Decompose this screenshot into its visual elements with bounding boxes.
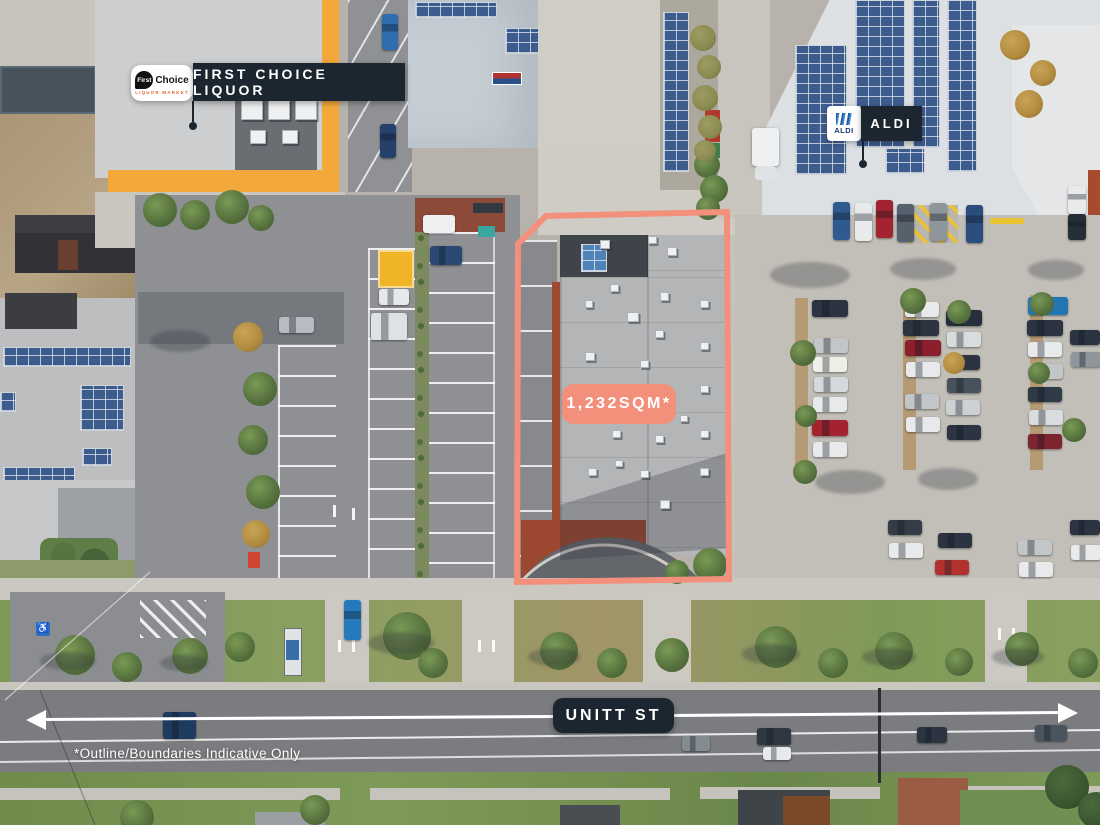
tree xyxy=(692,85,718,111)
tree-shadow xyxy=(992,648,1044,666)
car xyxy=(382,14,398,50)
tree xyxy=(238,425,268,455)
hvac-unit xyxy=(585,300,593,308)
car xyxy=(1028,342,1062,357)
tree xyxy=(1028,362,1050,384)
solar-panel-array xyxy=(82,448,112,466)
tree-shadow xyxy=(368,632,434,654)
disabled-parking-symbol: ♿ xyxy=(36,622,50,636)
footpath-south xyxy=(0,788,340,800)
parking-bay-lines xyxy=(278,345,336,590)
car xyxy=(279,317,314,333)
tree-shadow xyxy=(918,468,978,490)
hvac-unit xyxy=(627,312,639,322)
car xyxy=(344,600,361,640)
car xyxy=(1068,186,1086,214)
hvac-unit xyxy=(700,342,709,350)
tree xyxy=(900,288,926,314)
aldi-logo-text: ALDI xyxy=(834,126,854,135)
car xyxy=(905,340,941,356)
hvac-unit xyxy=(640,360,649,368)
hvac-unit xyxy=(667,247,677,256)
tree xyxy=(1030,292,1054,316)
hvac-unit xyxy=(295,100,317,120)
tree xyxy=(418,648,448,678)
solar-panel-array xyxy=(80,385,124,431)
car xyxy=(813,397,847,412)
solar-panel-array xyxy=(0,392,16,412)
hvac-unit xyxy=(700,385,709,393)
tree xyxy=(665,560,689,584)
tree xyxy=(597,648,627,678)
house-roof xyxy=(560,805,620,825)
tree xyxy=(945,648,973,676)
tree-shadow xyxy=(40,652,96,670)
car xyxy=(813,442,847,457)
car xyxy=(1071,352,1100,367)
car xyxy=(1029,410,1063,425)
car xyxy=(947,332,981,347)
first-choice-logo-text: Choice xyxy=(155,75,188,86)
car xyxy=(814,377,848,392)
hvac-unit xyxy=(610,284,619,292)
tree xyxy=(248,205,274,231)
hvac-unit xyxy=(700,468,709,476)
tree xyxy=(246,475,280,509)
car xyxy=(855,203,872,241)
tree xyxy=(655,638,689,672)
car xyxy=(812,300,848,317)
tree xyxy=(694,140,716,162)
site-front-ground xyxy=(521,520,646,580)
hvac-unit xyxy=(655,330,664,338)
white-van xyxy=(423,215,455,233)
street-name-label: UNITT ST xyxy=(553,698,674,733)
tree xyxy=(233,322,263,352)
gabled-roof-building xyxy=(408,0,553,148)
tree xyxy=(1000,30,1030,60)
hvac-unit xyxy=(600,240,610,249)
first-choice-logo: First Choice xyxy=(135,71,188,89)
car xyxy=(1068,214,1086,240)
first-choice-logo-tagline: LIQUOR MARKET xyxy=(135,90,189,95)
solar-panel-array xyxy=(885,148,925,174)
tree-shadow xyxy=(528,648,580,666)
tree xyxy=(1015,90,1043,118)
tree xyxy=(225,632,255,662)
aqua-container xyxy=(478,226,495,237)
hvac-unit xyxy=(615,460,623,467)
hvac-unit xyxy=(588,468,597,476)
hvac-unit xyxy=(241,100,263,120)
tree xyxy=(697,55,721,79)
trolley-bay-canopy xyxy=(378,250,414,288)
tree-shadow xyxy=(890,258,956,280)
tree xyxy=(242,520,270,548)
footpath-south xyxy=(370,788,670,800)
site-area-label: 1,232SQM* xyxy=(562,384,676,424)
brown-container xyxy=(783,796,830,825)
car xyxy=(1018,540,1052,555)
driveway-crossover xyxy=(462,585,514,695)
brown-shed-roof xyxy=(58,240,78,270)
tree-shadow xyxy=(742,644,800,664)
car xyxy=(380,124,396,158)
road-marking-arrow xyxy=(478,640,481,652)
hvac-unit xyxy=(250,130,266,144)
car xyxy=(812,420,848,436)
car xyxy=(682,736,710,751)
median-planting xyxy=(415,230,429,590)
road-marking-arrow xyxy=(352,640,355,652)
hvac-unit xyxy=(700,430,709,438)
tree xyxy=(300,795,330,825)
loading-canopy-roof xyxy=(0,66,96,114)
tree xyxy=(693,548,727,582)
kerb-gutter xyxy=(0,682,1100,690)
hvac-unit xyxy=(640,470,649,478)
solar-panel-array xyxy=(947,0,977,172)
tree xyxy=(818,648,848,678)
car xyxy=(1028,387,1062,402)
car xyxy=(906,417,940,432)
power-pole xyxy=(878,688,881,783)
delivery-truck xyxy=(752,128,779,166)
car xyxy=(946,400,980,415)
hvac-unit xyxy=(700,300,709,308)
hvac-unit xyxy=(655,435,664,443)
car xyxy=(1070,330,1100,345)
road-marking-arrow xyxy=(998,628,1001,640)
aldi-logo-badge: ALDI xyxy=(827,106,861,141)
first-choice-logo-circle: First xyxy=(135,71,153,89)
tree-shadow xyxy=(160,655,208,671)
aldi-logo-stripes xyxy=(836,113,852,125)
dark-flat-roof xyxy=(5,293,77,329)
road-marking-arrow xyxy=(338,640,341,652)
white-hatched-marking xyxy=(140,600,206,638)
truck-cab xyxy=(755,166,776,180)
aldi-label: ALDI xyxy=(861,106,922,141)
solar-panel-array xyxy=(415,2,497,18)
driveway-crossover xyxy=(643,585,691,688)
yellow-kerb-marking xyxy=(990,218,1024,224)
tree xyxy=(793,460,817,484)
tree xyxy=(1030,60,1056,86)
car xyxy=(889,543,923,558)
hvac-unit xyxy=(648,236,657,244)
car xyxy=(1071,545,1100,560)
car xyxy=(930,203,947,241)
hvac-unit xyxy=(660,292,669,301)
car xyxy=(430,246,462,265)
car xyxy=(903,320,939,336)
road-marking-arrow xyxy=(352,508,355,520)
brick-path xyxy=(898,778,968,825)
car xyxy=(917,727,947,743)
first-choice-logo-badge: First Choice LIQUOR MARKET xyxy=(131,65,193,101)
subject-dark-roof-section xyxy=(560,228,655,278)
tree xyxy=(696,196,720,220)
car xyxy=(1070,520,1100,535)
car xyxy=(876,200,893,238)
car xyxy=(897,204,914,242)
car xyxy=(833,202,850,240)
solar-panel-array xyxy=(663,12,689,172)
tree xyxy=(1062,418,1086,442)
tree-shadow xyxy=(815,470,885,494)
car xyxy=(1035,725,1067,741)
solar-panel-array xyxy=(3,347,131,367)
car xyxy=(947,378,981,393)
tree xyxy=(790,340,816,366)
car xyxy=(938,533,972,548)
car xyxy=(371,313,407,340)
car xyxy=(163,712,196,739)
tree xyxy=(243,372,277,406)
tree-shadow xyxy=(150,330,210,352)
tree-shadow xyxy=(770,262,850,288)
hvac-unit xyxy=(282,130,298,144)
roof-sign xyxy=(492,72,522,85)
bus-shelter-roof xyxy=(286,640,299,660)
tree-shadow xyxy=(862,648,916,666)
tree xyxy=(112,652,142,682)
car xyxy=(888,520,922,535)
hvac-unit xyxy=(680,415,688,422)
car xyxy=(814,338,848,353)
parking-bay-lines xyxy=(429,232,495,582)
tree xyxy=(947,300,971,324)
car xyxy=(813,357,847,372)
first-choice-yellow-awning xyxy=(108,170,333,192)
car xyxy=(935,560,969,575)
charity-bin-red xyxy=(248,552,260,568)
planter-median xyxy=(795,298,808,470)
waste-bins xyxy=(473,203,503,213)
aerial-photo-canvas: ♿ First Choice xyxy=(0,0,1100,825)
car xyxy=(1019,562,1053,577)
car xyxy=(905,394,939,409)
road-marking-arrow xyxy=(333,505,336,517)
tree xyxy=(180,200,210,230)
boundary-disclaimer-text: *Outline/Boundaries Indicative Only xyxy=(74,746,300,761)
road-marking-arrow xyxy=(492,640,495,652)
car xyxy=(966,205,983,243)
hvac-unit xyxy=(268,100,290,120)
tree xyxy=(215,190,249,224)
tree xyxy=(943,352,965,374)
car xyxy=(947,425,981,440)
hvac-unit xyxy=(612,430,621,438)
tree-shadow xyxy=(1028,260,1084,280)
car xyxy=(1027,320,1063,336)
hvac-unit xyxy=(660,500,670,509)
car xyxy=(763,747,791,760)
tree xyxy=(698,115,722,139)
first-choice-label: FIRST CHOICE LIQUOR xyxy=(193,63,405,101)
car xyxy=(379,289,409,305)
car xyxy=(906,362,940,377)
tree xyxy=(795,405,817,427)
tree xyxy=(143,193,177,227)
car xyxy=(757,728,791,745)
tree xyxy=(690,25,716,51)
hvac-unit xyxy=(585,352,595,361)
car xyxy=(1028,434,1062,449)
tree xyxy=(1068,648,1098,678)
